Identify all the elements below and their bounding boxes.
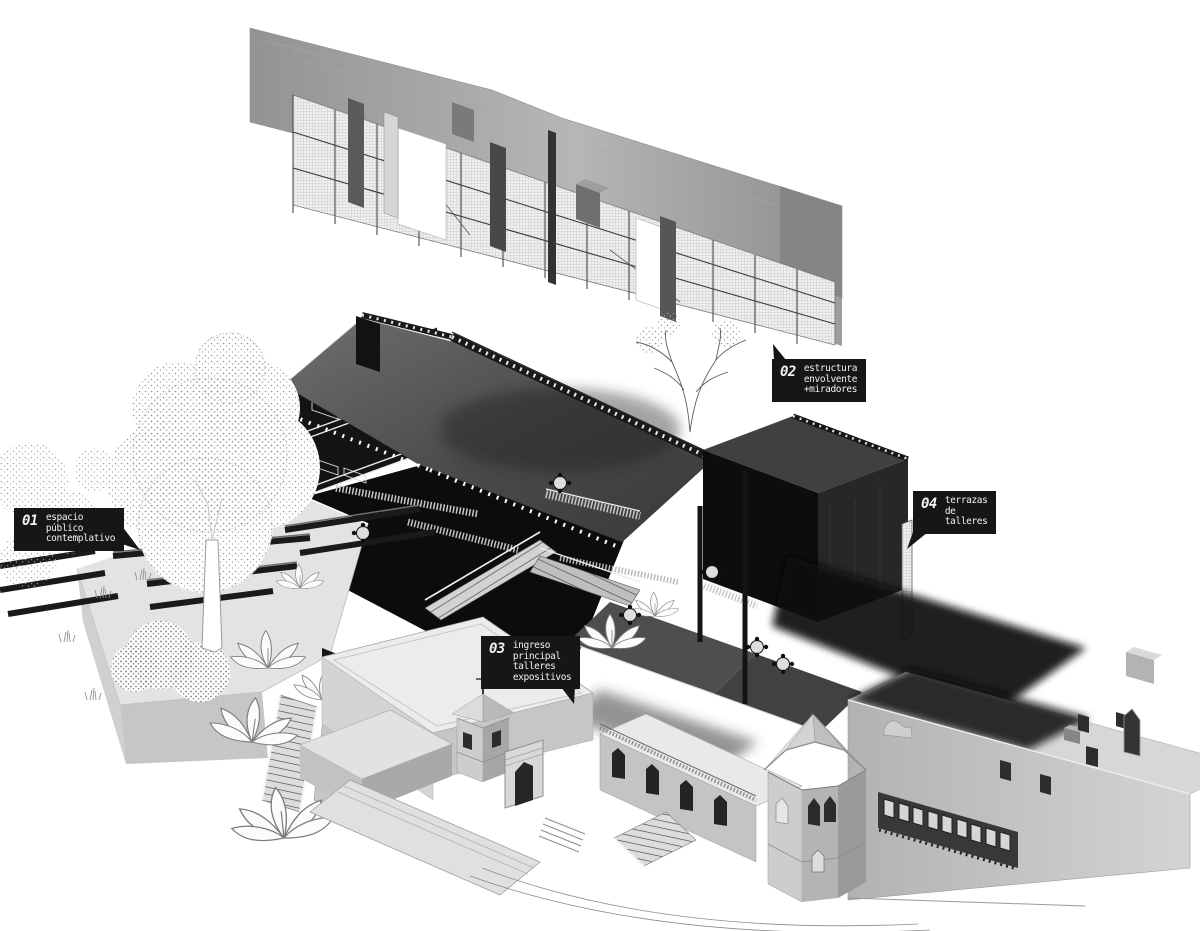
envelope-structure xyxy=(250,28,842,346)
callout-ingreso: 03 ingreso principal talleres expositivo… xyxy=(481,636,580,689)
callout-estructura: 02 estructura envolvente +miradores xyxy=(772,359,866,402)
callout-line: espacio xyxy=(46,513,115,524)
callout-number: 04 xyxy=(921,498,937,511)
callout-line: estructura xyxy=(804,364,857,375)
callout-line: talleres xyxy=(945,517,988,528)
callout-line: terrazas xyxy=(945,496,988,507)
callout-number: 03 xyxy=(489,643,505,656)
callout-number: 02 xyxy=(780,366,796,379)
diagram-canvas: 01 espacio público contemplativo 02 estr… xyxy=(0,0,1200,931)
callout-tail-icon xyxy=(907,532,929,550)
callout-terrazas: 04 terrazas de talleres xyxy=(913,491,996,534)
callout-number: 01 xyxy=(22,515,38,528)
callout-line: talleres xyxy=(513,662,572,673)
callout-tail-icon xyxy=(773,344,789,360)
callout-line: expositivos xyxy=(513,673,572,684)
callout-line: ingreso xyxy=(513,641,572,652)
callout-line: +miradores xyxy=(804,385,857,396)
axonometric-illustration xyxy=(0,0,1200,931)
callout-line: contemplativo xyxy=(46,534,115,545)
callout-tail-icon xyxy=(561,687,577,705)
callout-espacio-publico: 01 espacio público contemplativo xyxy=(14,508,124,551)
callout-tail-icon xyxy=(122,524,142,552)
